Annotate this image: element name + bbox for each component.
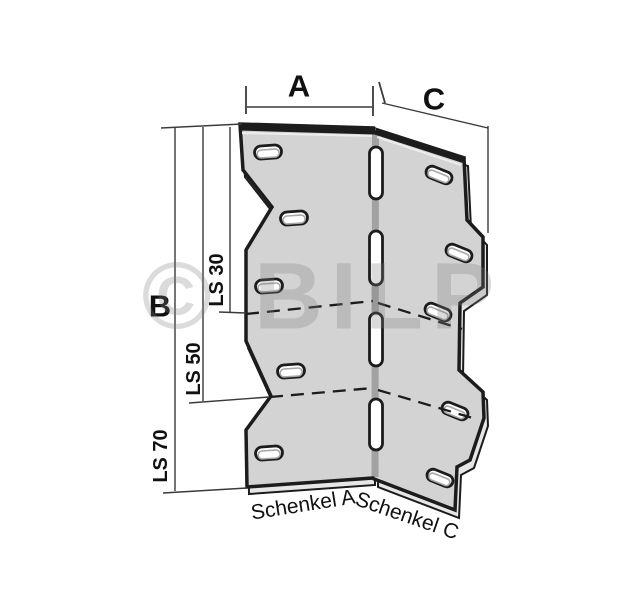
diagram-canvas: A C B LS 30 LS 50 LS 70 Schenkel A Schen…	[0, 0, 640, 600]
leg-a-slot	[277, 364, 305, 379]
leg-a-top-edge	[239, 127, 375, 131]
leg-a-slot	[254, 145, 282, 160]
watermark: © BILP	[142, 250, 503, 345]
dimension-label-a: A	[288, 71, 310, 102]
fold-slot	[370, 399, 383, 450]
leg-a-slot	[280, 211, 308, 226]
leg-a-slot	[255, 446, 283, 461]
dimension-label-ls50: LS 50	[184, 342, 204, 395]
dimension-label-ls70: LS 70	[151, 429, 171, 482]
fold-slot	[370, 147, 383, 199]
dimension-c-tick-left	[379, 82, 385, 103]
extension-line-ls50	[189, 397, 269, 403]
dimension-label-c: C	[423, 84, 445, 115]
